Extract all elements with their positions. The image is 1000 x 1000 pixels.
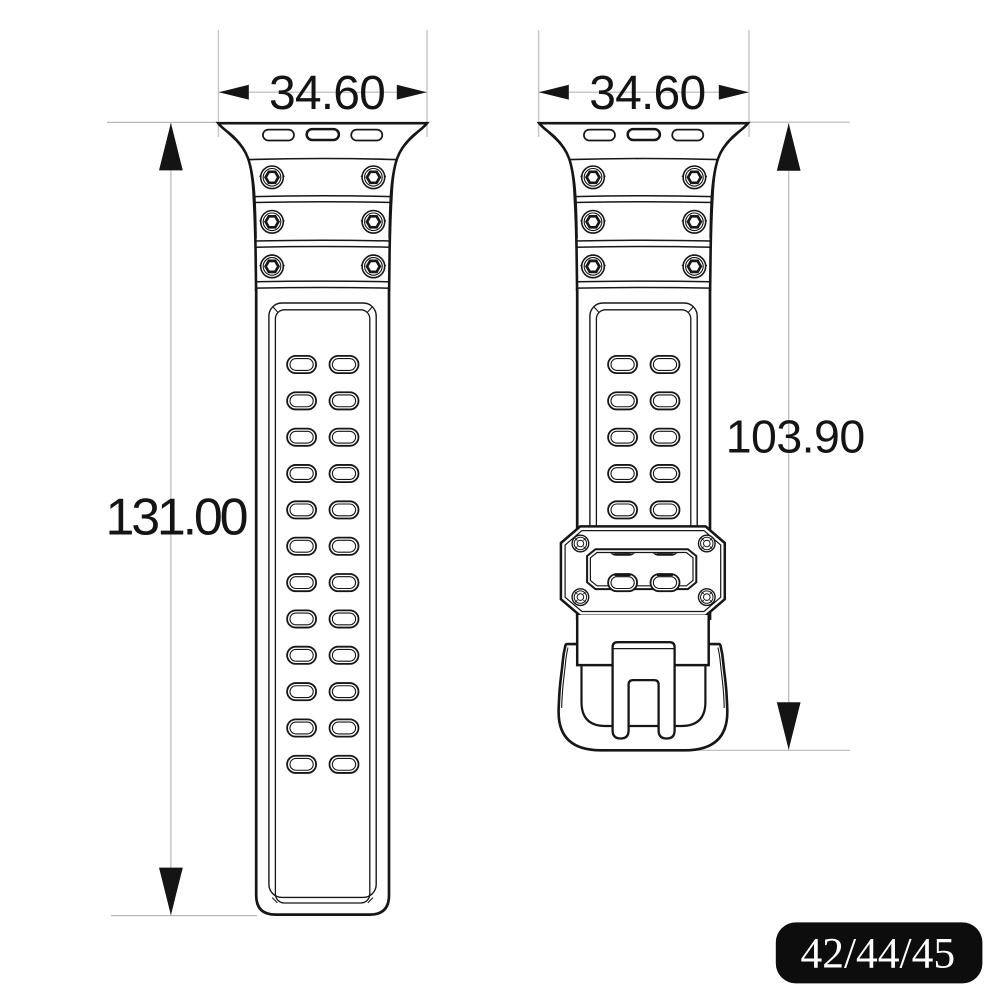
svg-text:42/44/45: 42/44/45 [800,930,955,978]
svg-text:103.90: 103.90 [726,410,865,462]
svg-text:34.60: 34.60 [589,67,705,120]
svg-text:34.60: 34.60 [269,67,385,120]
svg-text:131.00: 131.00 [105,489,246,547]
